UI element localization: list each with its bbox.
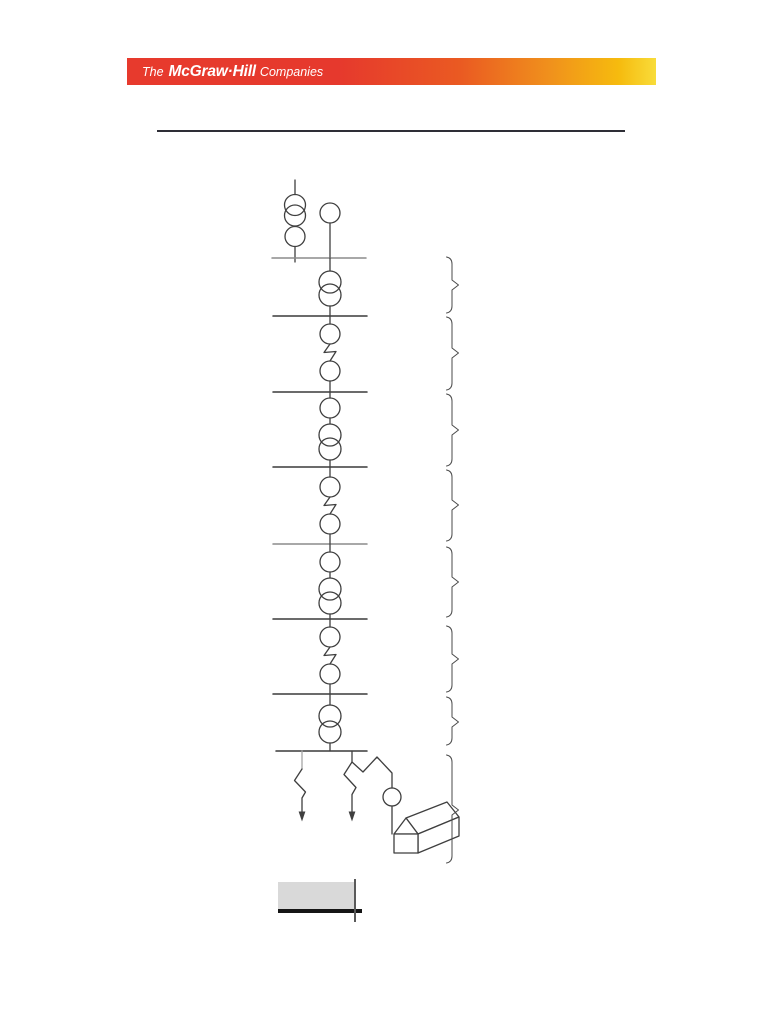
load-branches [295, 751, 357, 822]
line-section-zigzag [324, 344, 336, 361]
section-brace [447, 626, 459, 692]
house-front-wall [394, 834, 418, 853]
circuit-breaker-symbol [320, 398, 340, 418]
section-brace [447, 470, 459, 541]
footer-box-underline [278, 909, 362, 913]
transformer-symbol [319, 578, 341, 600]
section-brace [447, 697, 459, 745]
footer-highlight-box [278, 882, 355, 911]
circuit-breaker-symbol [320, 361, 340, 381]
line-section-zigzag [324, 647, 336, 664]
section-brace [447, 394, 459, 466]
circuit-breaker-symbol [320, 664, 340, 684]
bus-bars [272, 258, 367, 751]
load-arrow-icon [349, 812, 356, 822]
page: { "banner": { "logo_prefix": "The", "log… [0, 0, 781, 1024]
generator-branch [320, 203, 340, 258]
circuit-breaker-symbol [320, 324, 340, 344]
load-zigzag [344, 751, 356, 813]
one-line-diagram-figure [0, 0, 781, 1024]
meter-symbol [383, 788, 401, 806]
transformer-symbol [319, 592, 341, 614]
customer-service-branch [352, 757, 459, 853]
load-arrow-icon [299, 812, 306, 822]
footer-box-right-tick [354, 879, 356, 922]
transformer-symbol [319, 284, 341, 306]
transformer-symbol [319, 271, 341, 293]
generator-transformer-branch [285, 180, 306, 262]
generator-symbol [320, 203, 340, 223]
circuit-breaker-symbol [320, 514, 340, 534]
section-braces [447, 257, 459, 863]
transformer-symbol [319, 721, 341, 743]
circuit-breaker-symbol [285, 227, 305, 247]
section-brace [447, 547, 459, 617]
service-drop-zigzag [352, 757, 392, 788]
circuit-breaker-symbol [320, 627, 340, 647]
circuit-breaker-symbol [320, 552, 340, 572]
load-zigzag [295, 769, 306, 813]
house-icon [394, 802, 459, 853]
transformer-symbol [319, 424, 341, 446]
circuit-breaker-symbol [320, 477, 340, 497]
section-brace [447, 257, 459, 313]
section-brace [447, 317, 459, 390]
main-feeder-column [319, 258, 341, 751]
line-section-zigzag [324, 497, 336, 514]
transformer-symbol [319, 438, 341, 460]
